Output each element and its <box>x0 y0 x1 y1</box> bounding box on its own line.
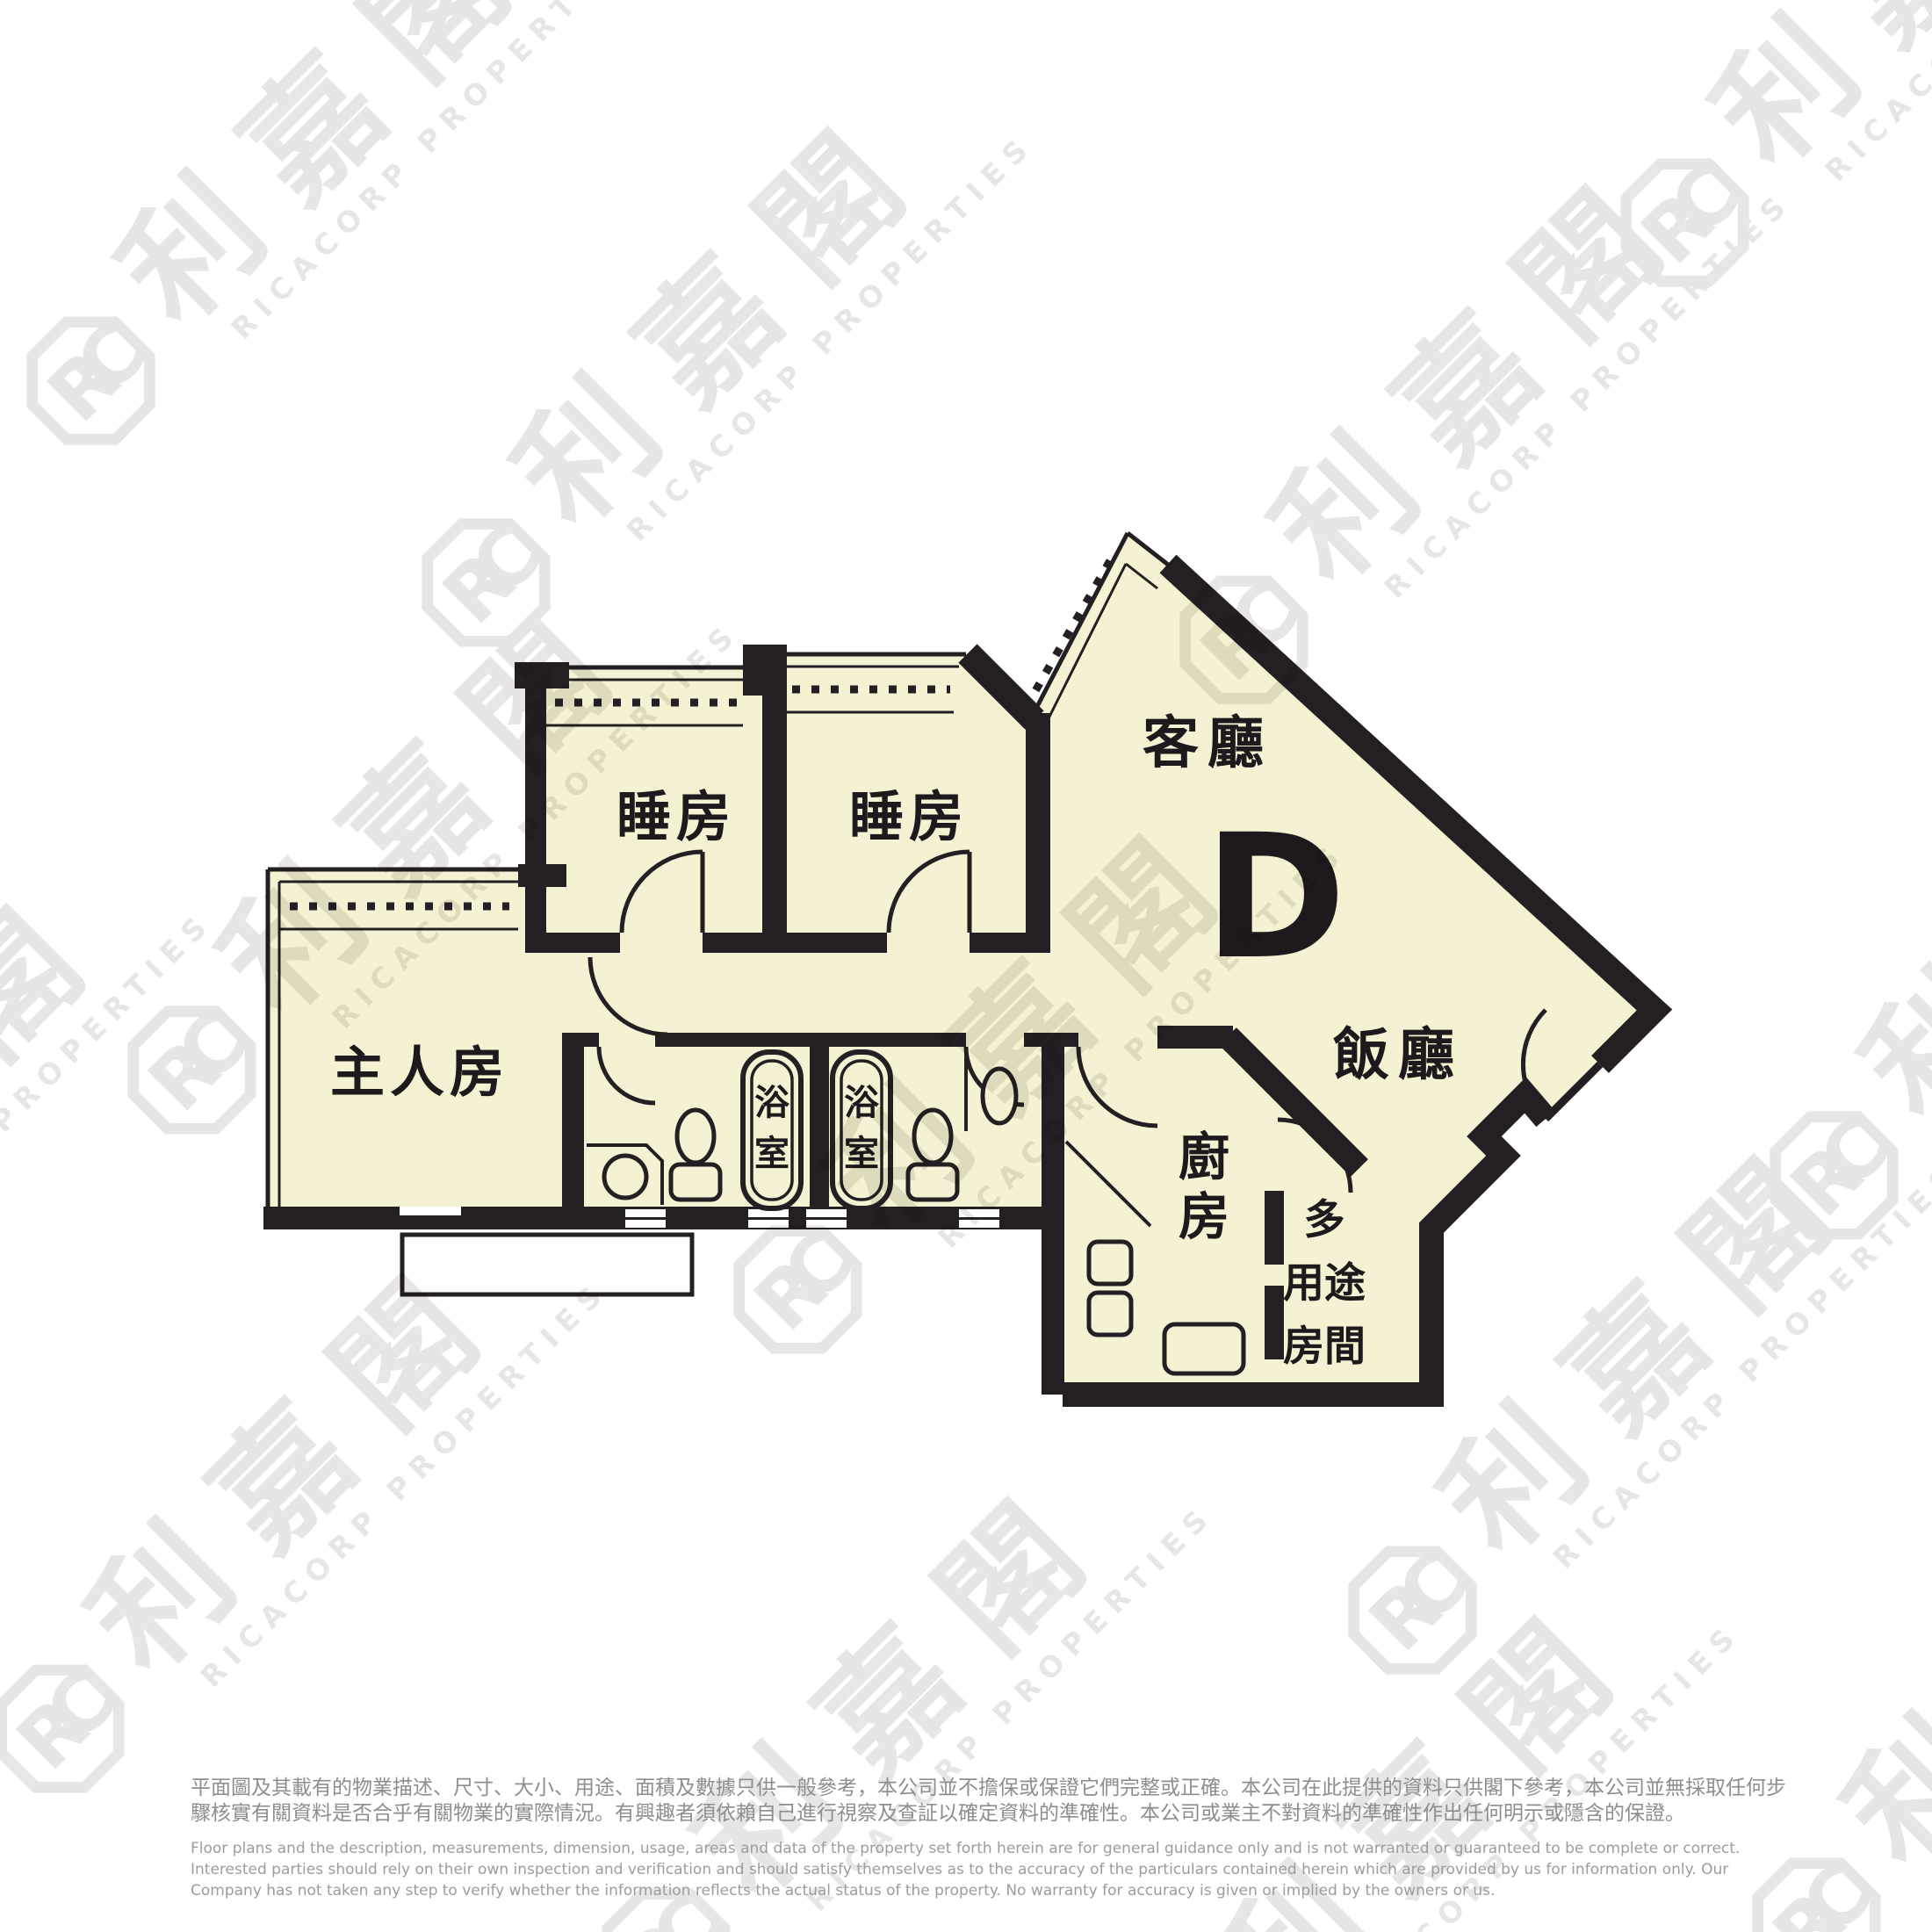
label-master-bedroom: 主人房 <box>330 1040 509 1104</box>
disclaimer-zh-line1: 平面圖及其載有的物業描述、尺寸、大小、用途、面積及數據只供一般參考，本公司並不擔… <box>191 1776 1771 1801</box>
label-bedroom-2: 睡房 <box>849 784 969 848</box>
label-bathroom-1: 浴 室 <box>754 1078 789 1179</box>
label-bathroom-2: 浴 室 <box>844 1078 879 1179</box>
disclaimer-en-line3: Company has not taken any step to verify… <box>191 1880 1771 1901</box>
disclaimer-en-line1: Floor plans and the description, measure… <box>191 1838 1771 1859</box>
disclaimer-zh-line2: 驟核實有關資料是否合乎有關物業的實際情況。有興趣者須依賴自己進行視察及查証以確定… <box>191 1801 1771 1827</box>
label-living-room: 客廳 <box>1143 711 1272 778</box>
label-bedroom-1: 睡房 <box>616 784 736 848</box>
disclaimer-en-line2: Interested parties should rely on their … <box>191 1859 1771 1880</box>
unit-letter: D <box>1204 797 1346 998</box>
disclaimer: 平面圖及其載有的物業描述、尺寸、大小、用途、面積及數據只供一般參考，本公司並不擔… <box>191 1776 1771 1901</box>
label-kitchen: 廚 房 <box>1179 1128 1229 1248</box>
label-dining-room: 飯廳 <box>1333 1023 1463 1090</box>
floor-plan-page: 客廳 飯廳 睡房 睡房 主人房 廚 房 浴 室 浴 室 多 用途 房間 D RC… <box>0 0 1932 1932</box>
room-labels: 客廳 飯廳 睡房 睡房 主人房 廚 房 浴 室 浴 室 多 用途 房間 D <box>0 0 1932 1932</box>
label-multi-purpose-room: 多 用途 房間 <box>1283 1189 1366 1379</box>
